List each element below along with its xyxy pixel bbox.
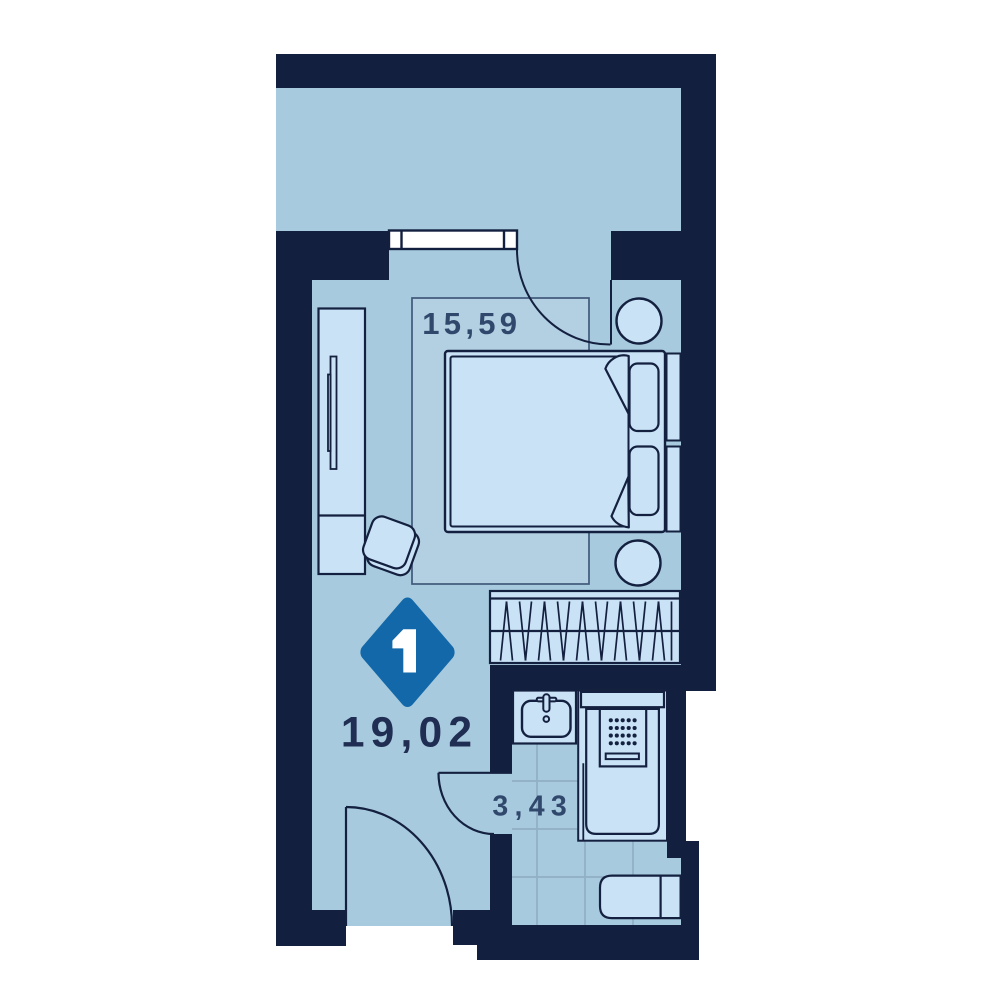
svg-text:3,43: 3,43 — [492, 791, 573, 823]
svg-text:19,02: 19,02 — [341, 710, 478, 757]
svg-text:15,59: 15,59 — [422, 306, 521, 341]
